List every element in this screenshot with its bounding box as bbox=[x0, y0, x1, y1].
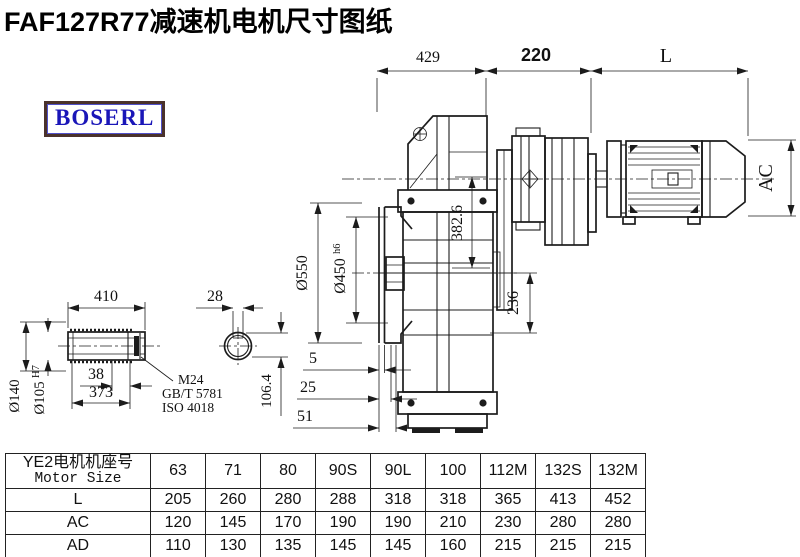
dim-5-label: 5 bbox=[309, 350, 317, 367]
dim-28: 28 bbox=[196, 288, 263, 333]
table-cell: 318 bbox=[426, 489, 481, 512]
motor bbox=[607, 141, 745, 224]
table-cell: 318 bbox=[371, 489, 426, 512]
table-row-AC: AC 120 145 170 190 190 210 230 280 280 bbox=[6, 512, 646, 535]
dim-450-tolerance: h6 bbox=[332, 244, 343, 255]
dim-106: 106.4 bbox=[246, 312, 288, 416]
table-header-cell: 132M bbox=[591, 454, 646, 489]
table-cell: 215 bbox=[591, 535, 646, 557]
table-cell: 170 bbox=[261, 512, 316, 535]
row-label: L bbox=[6, 489, 151, 512]
table-cell: 230 bbox=[481, 512, 536, 535]
table-cell: 413 bbox=[536, 489, 591, 512]
dim-106-label: 106.4 bbox=[259, 374, 275, 408]
dim-105H7: Ø105 H7 bbox=[31, 318, 48, 415]
table-row-L: L 205 260 280 288 318 318 365 413 452 bbox=[6, 489, 646, 512]
dim-L-label: L bbox=[660, 45, 672, 67]
dim-550-label: Ø550 bbox=[294, 255, 311, 291]
dim-236-label: 236 bbox=[505, 291, 522, 315]
table-header-cell: 100 bbox=[426, 454, 481, 489]
dim-220-label: 220 bbox=[521, 45, 551, 65]
main-view: 429 220 L AC Ø550 bbox=[293, 45, 796, 432]
motor-size-table: YE2电机机座号 Motor Size 63 71 80 90S 90L 100… bbox=[5, 453, 646, 557]
gear-stage-adapter bbox=[497, 128, 607, 310]
table-cell: 215 bbox=[481, 535, 536, 557]
drawing-page: FAF127R77减速机电机尺寸图纸 BOSERL bbox=[0, 0, 800, 557]
table-cell: 280 bbox=[591, 512, 646, 535]
table-header-cell: 71 bbox=[206, 454, 261, 489]
table-cell: 210 bbox=[426, 512, 481, 535]
dim-51-label: 51 bbox=[297, 408, 313, 425]
dim-382-label: 382.6 bbox=[449, 205, 466, 241]
table-cell: 288 bbox=[316, 489, 371, 512]
table-cell: 280 bbox=[261, 489, 316, 512]
dim-450-label: Ø450 bbox=[332, 258, 349, 294]
dim-140-label: Ø140 bbox=[7, 379, 23, 412]
table-cell: 135 bbox=[261, 535, 316, 557]
dim-410: 410 bbox=[68, 288, 145, 330]
table-header-cell: 90S bbox=[316, 454, 371, 489]
leader-gbt: GB/T 5781 bbox=[162, 386, 223, 401]
top-dimensions: 429 220 L bbox=[377, 45, 748, 136]
bolt-leader-note: M24 GB/T 5781 ISO 4018 bbox=[141, 357, 223, 415]
dim-25-label: 25 bbox=[300, 379, 316, 396]
table-header-cell: 80 bbox=[261, 454, 316, 489]
table-cell: 215 bbox=[536, 535, 591, 557]
table-cell: 280 bbox=[536, 512, 591, 535]
table-cell: 110 bbox=[151, 535, 206, 557]
flange-step-dimensions: 5 25 51 bbox=[293, 345, 421, 432]
table-cell: 160 bbox=[426, 535, 481, 557]
table-header-cell: 90L bbox=[371, 454, 426, 489]
dim-AC-label: AC bbox=[755, 164, 777, 192]
shaft-detail-view: 410 Ø140 Ø105 H7 bbox=[7, 288, 223, 415]
dim-105-label: Ø105 bbox=[32, 381, 48, 414]
table-cell: 145 bbox=[316, 535, 371, 557]
technical-drawing: 429 220 L AC Ø550 bbox=[0, 0, 800, 453]
table-cell: 452 bbox=[591, 489, 646, 512]
dim-AC: AC bbox=[748, 140, 796, 216]
dim-410-label: 410 bbox=[94, 288, 118, 305]
table-cell: 260 bbox=[206, 489, 261, 512]
table-header-cell: YE2电机机座号 Motor Size bbox=[6, 454, 151, 489]
table-cell: 190 bbox=[371, 512, 426, 535]
table-header-zh: YE2电机机座号 bbox=[6, 455, 150, 472]
table-header-cell: 132S bbox=[536, 454, 591, 489]
table-cell: 145 bbox=[371, 535, 426, 557]
row-label: AD bbox=[6, 535, 151, 557]
dim-38-373: 38 373 bbox=[72, 360, 152, 409]
dim-105-tolerance: H7 bbox=[31, 365, 42, 378]
table-cell: 365 bbox=[481, 489, 536, 512]
leader-iso: ISO 4018 bbox=[162, 400, 214, 415]
table-cell: 130 bbox=[206, 535, 261, 557]
table-cell: 190 bbox=[316, 512, 371, 535]
leader-m24: M24 bbox=[178, 372, 204, 387]
dim-28-label: 28 bbox=[207, 288, 223, 305]
dim-429-label: 429 bbox=[416, 49, 440, 66]
table-header-en: Motor Size bbox=[6, 472, 150, 487]
dim-550: Ø550 bbox=[294, 203, 362, 343]
table-cell: 120 bbox=[151, 512, 206, 535]
row-label: AC bbox=[6, 512, 151, 535]
dim-38-label: 38 bbox=[88, 366, 104, 383]
table-header-cell: 63 bbox=[151, 454, 206, 489]
table-cell: 205 bbox=[151, 489, 206, 512]
table-header-row: YE2电机机座号 Motor Size 63 71 80 90S 90L 100… bbox=[6, 454, 646, 489]
dim-373-label: 373 bbox=[89, 384, 113, 401]
table-header-cell: 112M bbox=[481, 454, 536, 489]
table-cell: 145 bbox=[206, 512, 261, 535]
table-row-AD: AD 110 130 135 145 145 160 215 215 215 bbox=[6, 535, 646, 557]
